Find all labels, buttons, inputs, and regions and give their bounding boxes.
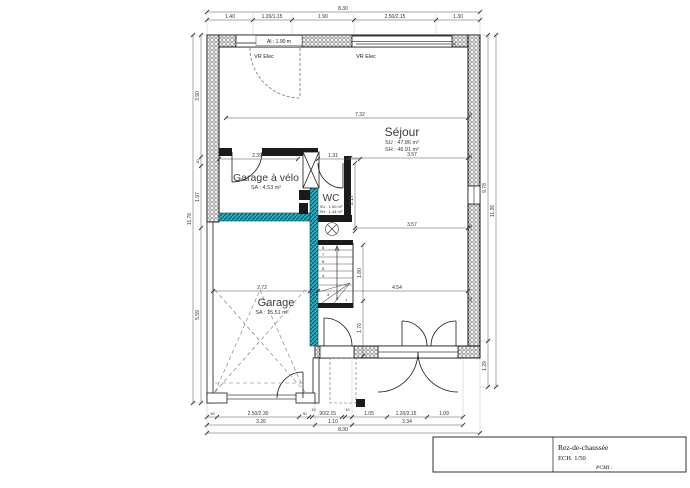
dim-right-inner: 9.78 bbox=[482, 183, 488, 193]
dim-bottom: 1.10 bbox=[328, 419, 338, 425]
dim-bottom-total: 8.30 bbox=[338, 427, 348, 433]
dim-interior: 3.57 bbox=[407, 222, 417, 228]
step-number: 6 bbox=[322, 259, 325, 264]
floor-plan-sheet: 8 7 6 5 4 3 2 1 bbox=[0, 0, 690, 488]
room-wc-sh: SH : 1.44 m² bbox=[320, 209, 343, 214]
door-wc bbox=[318, 163, 343, 188]
dim-interior: 4.54 bbox=[392, 285, 402, 291]
wall-tick: .30 bbox=[468, 296, 473, 302]
dim-left-seg: 1.97 bbox=[195, 192, 201, 202]
step-number: 7 bbox=[322, 252, 325, 257]
room-sejour: Séjour bbox=[385, 125, 420, 139]
step-number: 8 bbox=[322, 245, 325, 250]
dim-right-outer: 11.26 bbox=[490, 205, 496, 217]
stair-arrow bbox=[335, 246, 339, 300]
dim-bottom: 1.09 bbox=[439, 411, 449, 417]
wall-tick: .30 bbox=[468, 111, 473, 117]
dim-top-seg: 1.40 bbox=[225, 14, 235, 20]
dim-top-seg: 2.50/2.15 bbox=[385, 14, 406, 20]
step-number: 3 bbox=[327, 292, 330, 297]
title-block: Rez-de-chaussée ECH. 1/50 PCMI : bbox=[433, 437, 686, 472]
dim-interior: 2.72 bbox=[257, 285, 267, 291]
teal-wall-vertical bbox=[310, 188, 318, 346]
dim-interior: 2.39 bbox=[252, 153, 262, 159]
teal-wall-horizontal bbox=[219, 213, 310, 221]
vr-elec-label-left: VR Elec bbox=[254, 54, 274, 60]
title-block-title: Rez-de-chaussée bbox=[558, 443, 609, 452]
dim-left-seg: 3.90 bbox=[195, 91, 201, 101]
step-number: 5 bbox=[322, 266, 325, 271]
dim-interior: 7.32 bbox=[355, 112, 365, 118]
wall-tick: .30 bbox=[468, 223, 473, 229]
step-number: 2 bbox=[336, 296, 339, 301]
stairs: 8 7 6 5 4 3 2 1 bbox=[318, 240, 353, 308]
dim-top-seg: 1.90 bbox=[318, 14, 328, 20]
dimension-lines bbox=[193, 12, 496, 433]
dim-interior: 1.76 bbox=[357, 323, 363, 333]
dim-bottom: .10 bbox=[310, 407, 316, 412]
dim-top-seg: 1.20/1.15 bbox=[262, 14, 283, 20]
dim-bottom: 1.05 bbox=[364, 411, 374, 417]
wc-fixture bbox=[299, 190, 310, 200]
step-number: 4 bbox=[322, 273, 325, 278]
room-garage-sa: SA : 15.51 m² bbox=[255, 310, 288, 316]
dim-left-seg: .30 bbox=[195, 158, 200, 164]
title-block-scale: ECH. 1/50 bbox=[558, 455, 586, 462]
dim-bottom: .90/2.15 bbox=[318, 411, 336, 417]
dim-right-bottom: 1.29 bbox=[482, 361, 488, 371]
dim-left-total: 11.76 bbox=[187, 213, 193, 225]
room-wc: WC bbox=[323, 193, 340, 204]
dim-bottom: 3.26 bbox=[256, 419, 266, 425]
title-block-ref: PCMI : bbox=[595, 465, 613, 471]
extension-lines bbox=[189, 14, 500, 433]
dim-bottom: 1.20/2.15 bbox=[396, 411, 417, 417]
dim-interior: 1.31 bbox=[328, 153, 338, 159]
dim-bottom: .30 bbox=[301, 411, 307, 416]
duct-shaft bbox=[303, 152, 319, 188]
vr-elec-label-right: VR Elec bbox=[356, 54, 376, 60]
door-entry bbox=[324, 318, 352, 346]
dim-interior: 2.17 bbox=[349, 195, 355, 205]
wc-wall-right bbox=[344, 156, 351, 218]
wall-tick: .30 bbox=[468, 153, 473, 159]
room-garage-velo: Garage à vélo bbox=[233, 172, 299, 184]
step-number: 1 bbox=[345, 297, 348, 302]
dim-bottom: .30 bbox=[209, 411, 215, 416]
floor-drain-symbol bbox=[326, 223, 339, 236]
porch-post bbox=[330, 358, 365, 407]
room-sejour-sh: SH : 46.91 m² bbox=[385, 147, 419, 153]
dim-interior: 1.80 bbox=[357, 268, 363, 278]
dim-left-seg: 5.59 bbox=[195, 310, 201, 320]
dim-bottom: 3.34 bbox=[402, 419, 412, 425]
floor-plan-drawing: 8 7 6 5 4 3 2 1 bbox=[0, 0, 690, 488]
room-garage-velo-sa: SA : 4.53 m² bbox=[251, 185, 281, 191]
dimension-ticks bbox=[191, 10, 498, 435]
dim-top-total: 8.30 bbox=[338, 6, 348, 12]
velo-wall-left bbox=[219, 148, 232, 156]
room-garage: Garage bbox=[258, 297, 295, 309]
dim-top-seg: 1.30 bbox=[453, 14, 463, 20]
dim-bottom: 2.50/2.30 bbox=[248, 411, 269, 417]
dim-bottom: .10 bbox=[344, 407, 350, 412]
entry-opening bbox=[320, 346, 354, 358]
allege-label: Al : 1.90 m bbox=[267, 39, 291, 45]
wc-fixture bbox=[299, 203, 308, 214]
room-sejour-su: SU : 47.86 m² bbox=[385, 140, 419, 146]
